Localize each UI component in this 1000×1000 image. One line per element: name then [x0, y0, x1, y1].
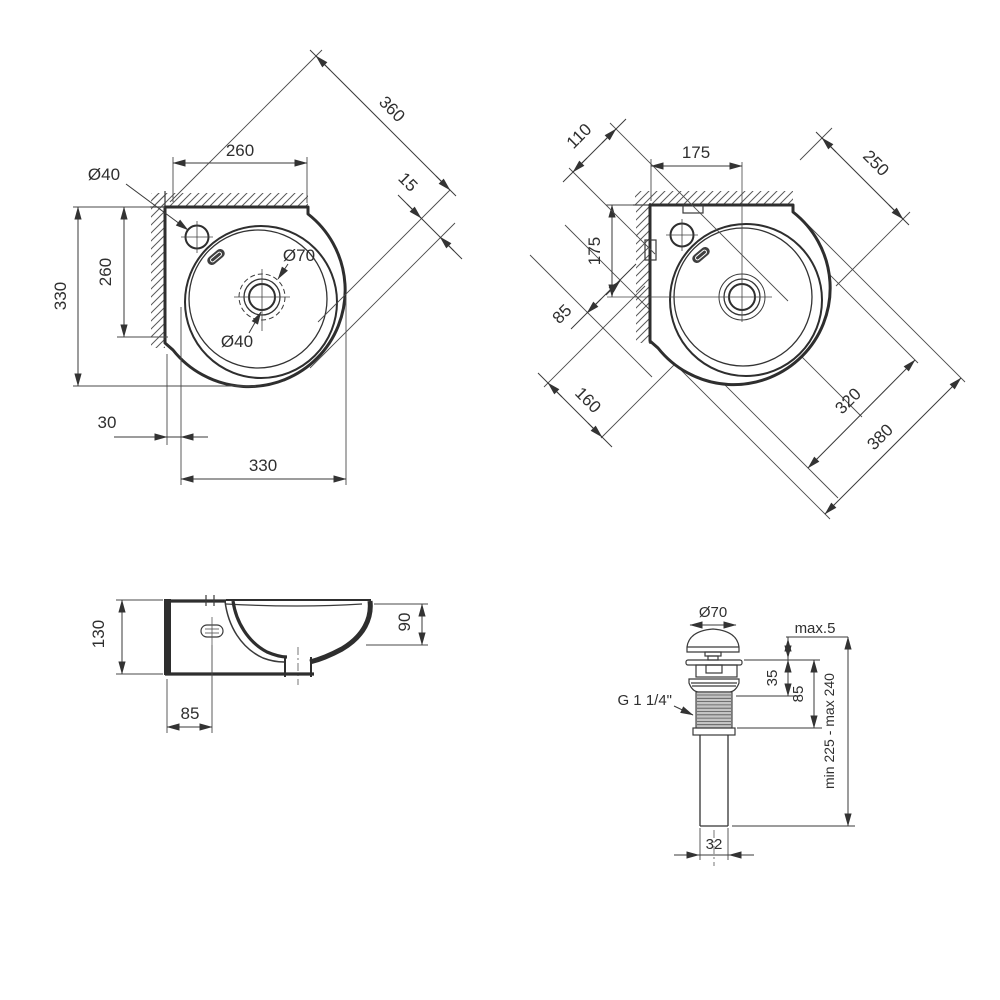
label-drain-hole: Ø40 [221, 332, 253, 351]
dim-label-250: 250 [859, 146, 892, 179]
label-cap-diameter: Ø70 [699, 604, 727, 621]
dim-label-380: 380 [863, 420, 896, 453]
drain-tailpipe [700, 735, 728, 826]
section-bowl-right [310, 601, 370, 662]
section-left-wall [164, 599, 171, 675]
ext-360-corner [170, 50, 322, 202]
dim-label-85-side: 85 [181, 704, 200, 723]
dim-label-90: 90 [395, 613, 414, 632]
ref-line-85a [530, 255, 652, 377]
dim-label-110: 110 [563, 120, 596, 153]
ext-130 [116, 600, 163, 674]
ext-250-b [836, 212, 910, 286]
technical-drawing-sheet: 260 360 15 Ø40 330 260 Ø70 Ø40 [0, 0, 1000, 1000]
dim-label-130: 130 [89, 620, 108, 648]
dim-label-85: 85 [549, 301, 576, 328]
wall-hatch-top-2 [635, 191, 793, 205]
drain-cap [687, 629, 739, 652]
top-plan-view: 260 360 15 Ø40 330 260 Ø70 Ø40 [51, 50, 462, 485]
diagonal-dimension-view: 175 175 110 250 85 160 320 380 [530, 119, 965, 519]
drain-body [696, 665, 737, 677]
section-bowl-left-inner [233, 601, 287, 657]
wall-hatch-left-2 [636, 205, 650, 343]
label-thread: G 1 1/4" [617, 692, 672, 709]
dim-label-260-left: 260 [96, 258, 115, 286]
side-section-view: 130 90 85 [89, 595, 428, 733]
dim-label-max5: max.5 [795, 620, 836, 637]
ext-250-a [800, 128, 832, 160]
dim-label-32: 32 [706, 836, 723, 853]
wall-hatch-left [151, 193, 165, 348]
drain-collar [693, 728, 735, 735]
dim-label-175-top: 175 [682, 143, 710, 162]
dim-label-minmax: min 225 - max 240 [821, 673, 837, 789]
dim-label-15: 15 [394, 169, 421, 196]
dim-label-175-left: 175 [585, 237, 604, 265]
dim-label-85-drain: 85 [790, 686, 807, 703]
dim-label-330-bottom: 330 [249, 456, 277, 475]
wall-hatch-top [152, 193, 308, 207]
label-faucet-hole: Ø40 [88, 165, 120, 184]
dim-label-330-left: 330 [51, 282, 70, 310]
dim-320 [808, 360, 915, 468]
dim-label-260-top: 260 [226, 141, 254, 160]
drain-thread [696, 692, 732, 728]
dim-360-line [310, 50, 456, 196]
drain-body-boss [706, 665, 722, 673]
dim-85-line [571, 264, 636, 329]
leader-thread [674, 706, 693, 715]
corner-washbasin-drawing: 260 360 15 Ø40 330 260 Ø70 Ø40 [0, 0, 1000, 1000]
section-rim-inner [226, 604, 362, 606]
dim-label-320: 320 [831, 384, 864, 417]
drain-assembly-view: Ø70 G 1 1/4" max.5 35 [617, 604, 855, 866]
drain-seal-cone [689, 679, 739, 692]
ext-160-a [544, 286, 645, 387]
dim-label-35: 35 [764, 670, 781, 687]
label-drain-outer: Ø70 [283, 246, 315, 265]
dim-label-30: 30 [98, 413, 117, 432]
drain-flange [686, 660, 742, 665]
